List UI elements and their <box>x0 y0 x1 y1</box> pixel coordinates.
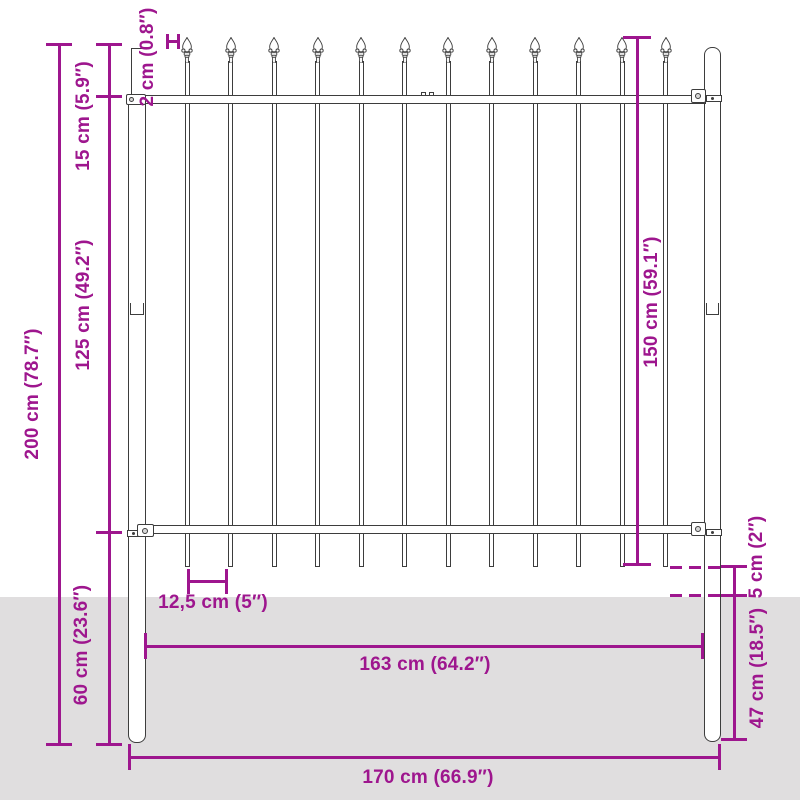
dim-line-ground-clearance <box>733 567 736 596</box>
spear-finial-icon <box>224 37 238 63</box>
dim-line-post-depth <box>733 596 736 741</box>
dim-tick <box>46 43 72 46</box>
leader-line <box>131 48 132 97</box>
dim-line-bar-offset <box>166 40 180 43</box>
screw-icon <box>711 531 714 534</box>
dim-label-panel-width: 163 cm (64.2″) <box>359 654 490 676</box>
dim-label-total-height: 200 cm (78.7″) <box>22 328 44 459</box>
dim-line-panel-width <box>146 645 704 648</box>
dim-label-ground-clearance: 5 cm (2″) <box>746 516 768 599</box>
screw-icon <box>132 532 135 535</box>
spear-finial-icon <box>311 37 325 63</box>
right-post <box>704 47 721 742</box>
top-rail-joint <box>421 92 426 96</box>
fence-bar <box>185 61 190 567</box>
dim-tick <box>187 569 190 594</box>
dim-tick <box>701 633 704 659</box>
bottom-rail <box>143 525 706 534</box>
screw-icon <box>695 93 701 99</box>
dim-line-total-height <box>58 45 61 745</box>
dim-tick <box>46 743 72 746</box>
spear-finial-icon <box>572 37 586 63</box>
fence-dimension-diagram: 200 cm (78.7″) 15 cm (5.9″) 125 cm (49.2… <box>0 0 800 800</box>
fence-bar <box>228 61 233 567</box>
dim-tick <box>225 569 228 594</box>
fence-bar <box>315 61 320 567</box>
fence-bar <box>402 61 407 567</box>
fence-bar <box>620 61 625 567</box>
dim-tick <box>721 738 747 741</box>
dashed-reference-line <box>670 566 722 569</box>
bracket-top-right-strap <box>706 95 722 102</box>
fence-bar <box>576 61 581 567</box>
fence-bar <box>663 61 668 567</box>
dim-tick <box>721 565 747 568</box>
dim-tick <box>623 36 651 39</box>
bracket-bottom-right-strap <box>706 529 722 536</box>
spear-finial-icon <box>485 37 499 63</box>
left-post-joint <box>130 303 144 315</box>
dim-label-mid-section: 125 cm (49.2″) <box>73 239 95 370</box>
top-rail <box>143 95 706 104</box>
right-post-joint <box>706 303 719 315</box>
spear-finial-icon <box>528 37 542 63</box>
dim-label-total-width: 170 cm (66.9″) <box>362 767 493 789</box>
dim-tick <box>623 563 651 566</box>
dim-label-spear-section: 15 cm (5.9″) <box>73 61 95 171</box>
screw-icon <box>129 97 134 102</box>
dim-tick <box>96 43 122 46</box>
screw-icon <box>711 97 714 100</box>
spear-finial-icon <box>354 37 368 63</box>
spear-finial-icon <box>441 37 455 63</box>
dim-label-lower-section: 60 cm (23.6″) <box>71 585 93 706</box>
dim-line-lower-section <box>108 533 111 745</box>
spear-finial-icon <box>398 37 412 63</box>
spear-finial-icon <box>615 37 629 63</box>
spear-finial-icon <box>267 37 281 63</box>
fence-bar <box>272 61 277 567</box>
dim-line-total-width <box>130 756 721 759</box>
fence-bar <box>533 61 538 567</box>
dim-tick <box>128 744 131 770</box>
spear-finial-icon <box>659 37 673 63</box>
dim-tick <box>718 744 721 770</box>
dim-line-panel-height <box>636 38 639 565</box>
dim-label-bar-spacing: 12,5 cm (5″) <box>158 592 268 614</box>
dashed-reference-line <box>670 594 722 597</box>
spear-finial-icon <box>180 37 194 63</box>
fence-bar <box>489 61 494 567</box>
dim-line-spear-section <box>108 45 111 97</box>
screw-icon <box>695 526 701 532</box>
dim-line-bar-spacing <box>189 580 228 583</box>
top-rail-joint <box>429 92 434 96</box>
dim-label-panel-height: 150 cm (59.1″) <box>641 236 663 367</box>
dim-tick <box>96 743 122 746</box>
dim-line-mid-section <box>108 97 111 533</box>
dim-label-bar-offset: 2 cm (0.8″) <box>137 8 159 107</box>
dim-tick <box>144 633 147 659</box>
screw-icon <box>142 528 148 534</box>
fence-bar <box>446 61 451 567</box>
fence-bar <box>359 61 364 567</box>
dim-label-post-depth: 47 cm (18.5″) <box>747 608 769 729</box>
